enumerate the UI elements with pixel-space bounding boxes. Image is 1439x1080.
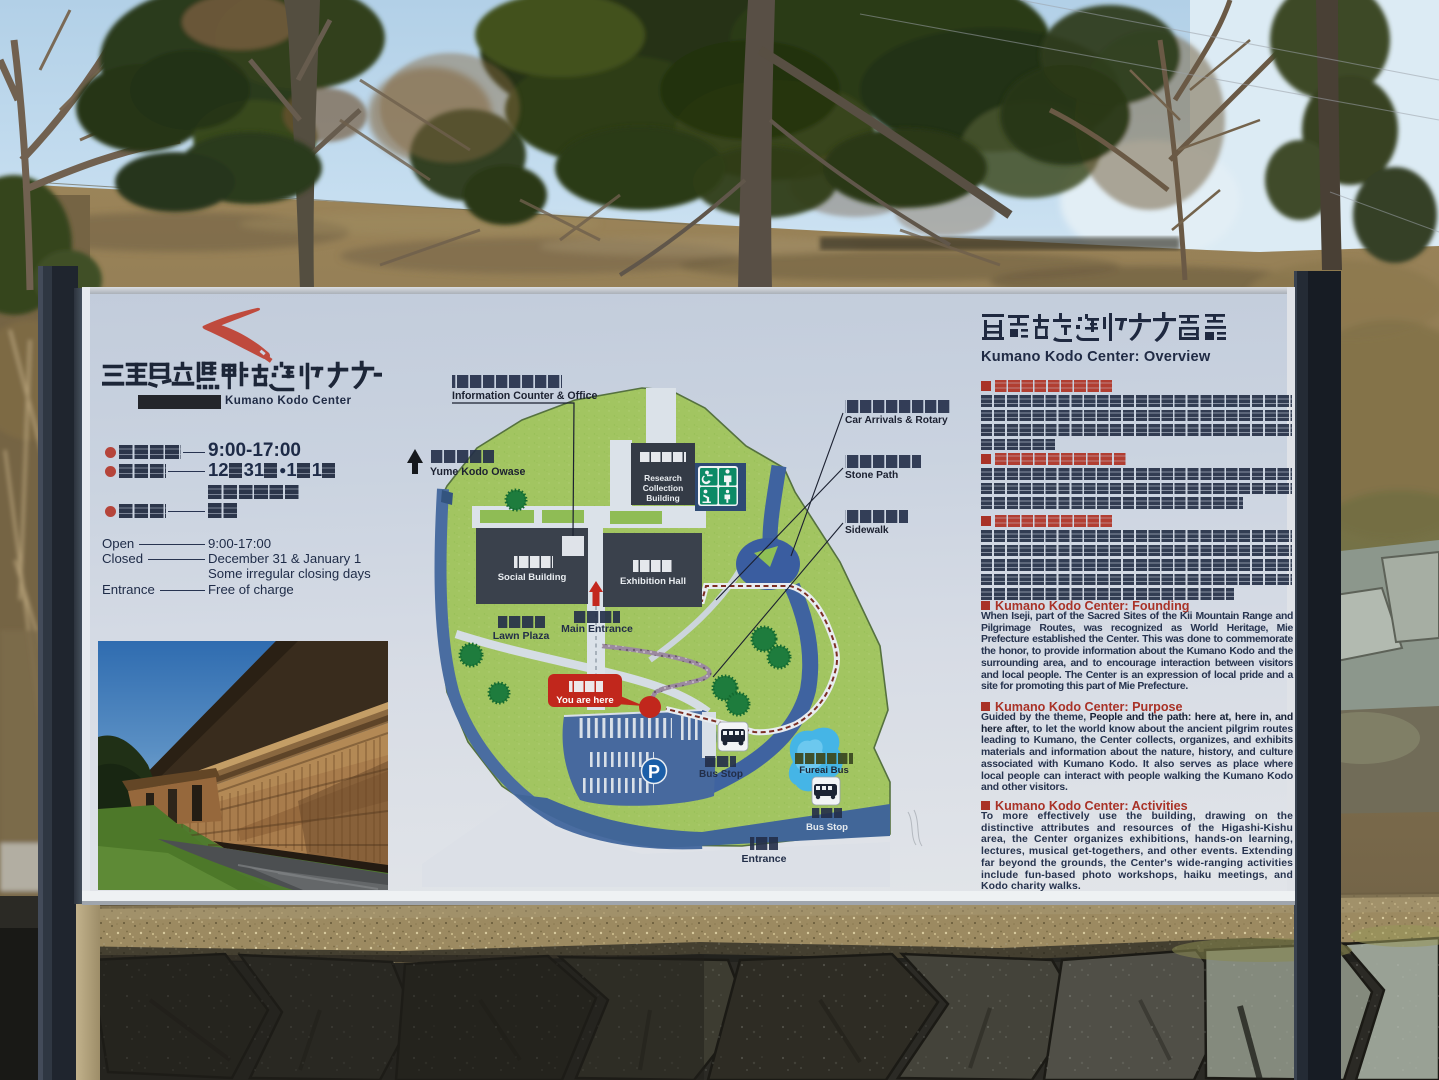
svg-text:Collection: Collection — [643, 483, 683, 493]
svg-text:You are here: You are here — [556, 695, 613, 706]
svg-text:Lawn Plaza: Lawn Plaza — [493, 630, 550, 642]
svg-text:Stone Path: Stone Path — [845, 470, 898, 481]
svg-text:Social Building: Social Building — [498, 572, 567, 583]
svg-text:Building: Building — [646, 493, 680, 503]
svg-text:Information Counter & Office: Information Counter & Office — [452, 390, 597, 402]
svg-text:Car Arrivals & Rotary: Car Arrivals & Rotary — [845, 415, 948, 426]
svg-text:Yume Kodo Owase: Yume Kodo Owase — [430, 466, 525, 478]
svg-text:Entrance: Entrance — [742, 853, 787, 865]
svg-text:P: P — [648, 762, 660, 782]
svg-text:Sidewalk: Sidewalk — [845, 525, 889, 536]
svg-text:Main Entrance: Main Entrance — [561, 623, 633, 635]
svg-text:Research: Research — [644, 473, 682, 483]
svg-text:Bus Stop: Bus Stop — [806, 822, 848, 833]
svg-text:Exhibition Hall: Exhibition Hall — [620, 576, 686, 587]
svg-text:Bus Stop: Bus Stop — [699, 769, 743, 780]
svg-text:Fureai Bus: Fureai Bus — [799, 765, 849, 776]
